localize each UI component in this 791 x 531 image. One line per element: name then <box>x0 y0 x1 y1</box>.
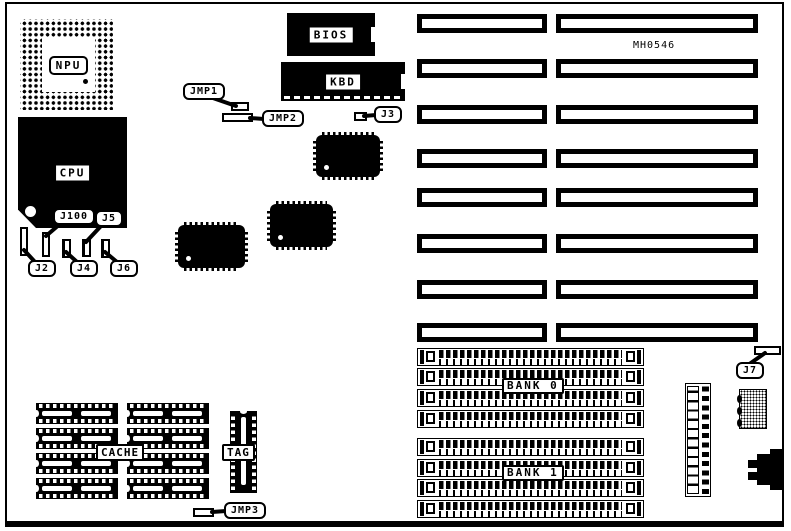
dip-notch <box>125 410 130 417</box>
j7-callout: J7 <box>736 362 764 379</box>
tag-text: TAG <box>227 446 250 459</box>
dip-pins <box>130 404 206 408</box>
simm-pins <box>439 359 622 365</box>
simm-post <box>420 502 424 516</box>
expansion-slot <box>417 280 547 299</box>
simm-socket <box>417 479 644 497</box>
dip-pins <box>39 469 115 473</box>
simm-post <box>420 412 424 426</box>
simm-latch <box>426 351 435 362</box>
bios-chip: BIOS <box>287 13 375 56</box>
j100-jumper <box>42 232 50 257</box>
simm-latch <box>426 482 435 493</box>
dip-pins <box>39 494 115 498</box>
j7-text: J7 <box>743 365 757 376</box>
expansion-slot <box>556 323 758 342</box>
jmp3-callout: JMP3 <box>224 502 266 519</box>
kbd-chip: KBD <box>281 62 405 101</box>
chip-pins <box>184 222 239 226</box>
din-connector-tab <box>748 472 757 480</box>
j3-jumper <box>354 112 367 121</box>
connector-pins <box>702 386 709 494</box>
jmp2-callout: JMP2 <box>262 110 304 127</box>
simm-pins <box>439 400 622 406</box>
j5-callout: J5 <box>95 210 123 227</box>
dip-pins <box>130 419 206 423</box>
expansion-slot <box>556 149 758 168</box>
dip-notch <box>34 410 39 417</box>
dip-cavity <box>133 486 163 491</box>
power-connector <box>685 383 711 497</box>
dip-cavity <box>81 486 111 491</box>
simm-post <box>420 481 424 495</box>
simm-latch <box>426 371 435 382</box>
simm-post <box>637 412 641 426</box>
simm-socket <box>417 500 644 518</box>
tag-label: TAG <box>222 444 255 461</box>
simm-latch <box>426 392 435 403</box>
simm-socket <box>417 410 644 428</box>
expansion-slot <box>417 14 547 33</box>
expansion-slot <box>417 234 547 253</box>
simm-post <box>637 350 641 364</box>
expansion-slot <box>417 149 547 168</box>
expansion-slot <box>556 234 758 253</box>
expansion-slot <box>556 280 758 299</box>
expansion-slot <box>417 105 547 124</box>
dip-notch <box>240 409 247 414</box>
jmp2-jumper <box>222 113 253 122</box>
dip-pins <box>130 429 206 433</box>
simm-post <box>637 481 641 495</box>
simm-pins <box>439 370 622 378</box>
j4-callout: J4 <box>70 260 98 277</box>
cache-dip-socket <box>36 403 118 424</box>
dip-notch <box>125 485 130 492</box>
dip-cavity <box>133 461 163 466</box>
chip-pin1-dot <box>278 235 283 240</box>
din-connector-bar <box>770 449 783 490</box>
npu-socket: NPU <box>20 19 113 110</box>
simm-post <box>420 350 424 364</box>
simm-post <box>420 370 424 384</box>
dip-notch <box>34 485 39 492</box>
qfp-chip-1 <box>316 135 380 177</box>
chip-pins <box>379 141 383 171</box>
cache-dip-socket <box>127 403 209 424</box>
j2-jumper <box>20 227 28 256</box>
simm-latch <box>426 441 435 452</box>
j2-callout: J2 <box>28 260 56 277</box>
chip-pins <box>175 231 179 262</box>
din-connector-tab <box>748 460 757 468</box>
dip-cavity <box>241 417 246 447</box>
simm-post <box>637 440 641 454</box>
simm-post <box>420 440 424 454</box>
cache-text: CACHE <box>101 446 139 459</box>
chip-bump <box>737 419 742 427</box>
simm-latch <box>626 441 635 452</box>
simm-latch <box>426 413 435 424</box>
j7-jumper <box>754 346 781 355</box>
dip-pins <box>130 494 206 498</box>
dip-notch <box>125 460 130 467</box>
jmp1-text: JMP1 <box>190 86 218 97</box>
npu-socket-cavity: NPU <box>42 38 95 92</box>
cache-label: CACHE <box>96 444 144 461</box>
simm-post <box>420 461 424 475</box>
chip-pin1-dot <box>186 256 191 261</box>
simm-latch <box>626 503 635 514</box>
dip-cavity <box>42 461 72 466</box>
simm-latch <box>426 503 435 514</box>
simm-socket <box>417 438 644 456</box>
kbd-pin-row <box>284 96 402 99</box>
simm-latch <box>626 371 635 382</box>
dip-notch <box>125 435 130 442</box>
simm-pins <box>439 440 622 448</box>
cache-dip-socket <box>127 478 209 499</box>
j3-callout: J3 <box>374 106 402 123</box>
jmp3-text: JMP3 <box>231 505 259 516</box>
dip-cavity <box>81 411 111 416</box>
dip-pins <box>39 404 115 408</box>
cpu-pin1-dot <box>25 206 36 217</box>
bios-notch <box>371 27 375 42</box>
dip-pins <box>130 469 206 473</box>
simm-pins <box>439 511 622 517</box>
dip-cavity <box>133 436 163 441</box>
simm-socket <box>417 348 644 366</box>
j100-callout: J100 <box>53 208 95 225</box>
j3-text: J3 <box>381 109 395 120</box>
jmp2-text: JMP2 <box>269 113 297 124</box>
kbd-label: KBD <box>326 74 360 89</box>
dip-cavity <box>42 436 72 441</box>
chip-pins <box>322 132 374 136</box>
part-number-text: MH0546 <box>633 40 675 51</box>
chip-pins <box>184 267 239 271</box>
simm-post <box>637 461 641 475</box>
j5-jumper <box>82 239 91 257</box>
qfp-chip-2 <box>270 204 333 247</box>
simm-pins <box>439 421 622 427</box>
expansion-slot <box>417 188 547 207</box>
dip-notch <box>34 435 39 442</box>
simm-pins <box>439 502 622 510</box>
dip-pins <box>39 429 115 433</box>
simm-latch <box>626 413 635 424</box>
j100-text: J100 <box>60 211 88 222</box>
bank1-label: BANK 1 <box>502 465 564 481</box>
stippled-chip <box>739 389 767 429</box>
simm-post <box>637 391 641 405</box>
bank0-text: BANK 0 <box>507 380 559 392</box>
kbd-notch <box>401 74 405 89</box>
chip-pins <box>332 210 336 241</box>
simm-pins <box>439 449 622 455</box>
chip-pins <box>322 176 374 180</box>
jmp1-callout: JMP1 <box>183 83 225 100</box>
simm-pins <box>439 350 622 358</box>
expansion-slot <box>556 14 758 33</box>
j4-jumper <box>62 239 71 258</box>
npu-pin1-dot <box>83 79 88 84</box>
dip-pins <box>130 479 206 483</box>
simm-post <box>637 370 641 384</box>
expansion-slot <box>417 323 547 342</box>
bank0-label: BANK 0 <box>502 378 564 394</box>
simm-latch <box>626 351 635 362</box>
chip-pin1-dot <box>324 165 329 170</box>
dip-cavity <box>172 411 202 416</box>
chip-bump <box>737 407 742 415</box>
chip-pins <box>244 231 248 262</box>
dip-cavity <box>81 436 111 441</box>
simm-latch <box>426 462 435 473</box>
chip-bump <box>737 395 742 403</box>
chip-pins <box>313 141 317 171</box>
expansion-slot <box>556 105 758 124</box>
dip-pins <box>39 419 115 423</box>
dip-cavity <box>42 411 72 416</box>
din-connector-body <box>757 454 771 485</box>
simm-latch <box>626 462 635 473</box>
jmp3-jumper <box>193 508 214 517</box>
dip-cavity <box>42 486 72 491</box>
chip-pins <box>276 246 327 250</box>
cache-dip-socket <box>36 478 118 499</box>
dip-notch <box>34 460 39 467</box>
simm-pins <box>439 412 622 420</box>
motherboard-diagram: NPU CPU BIOS KBD <box>0 0 791 531</box>
simm-latch <box>626 482 635 493</box>
expansion-slot <box>556 188 758 207</box>
bank1-text: BANK 1 <box>507 467 559 479</box>
dip-cavity <box>81 461 111 466</box>
dip-cavity <box>133 411 163 416</box>
j6-callout: J6 <box>110 260 138 277</box>
dip-pins <box>39 479 115 483</box>
dip-cavity <box>172 486 202 491</box>
expansion-slot <box>556 59 758 78</box>
npu-label: NPU <box>49 56 89 75</box>
j6-jumper <box>101 239 110 258</box>
chip-pins <box>267 210 271 241</box>
bios-label: BIOS <box>310 27 353 42</box>
dip-cavity <box>172 436 202 441</box>
jmp1-jumper <box>231 102 249 111</box>
cpu-label: CPU <box>56 165 90 180</box>
simm-latch <box>626 392 635 403</box>
simm-post <box>637 502 641 516</box>
chip-pins <box>276 201 327 205</box>
qfp-chip-3 <box>178 225 245 268</box>
connector-holes <box>687 386 699 494</box>
simm-pins <box>439 481 622 489</box>
dip-cavity <box>172 461 202 466</box>
j5-text: J5 <box>102 213 116 224</box>
simm-post <box>420 391 424 405</box>
j2-text: J2 <box>35 263 49 274</box>
j6-text: J6 <box>117 263 131 274</box>
j4-text: J4 <box>77 263 91 274</box>
simm-pins <box>439 490 622 496</box>
expansion-slot <box>417 59 547 78</box>
